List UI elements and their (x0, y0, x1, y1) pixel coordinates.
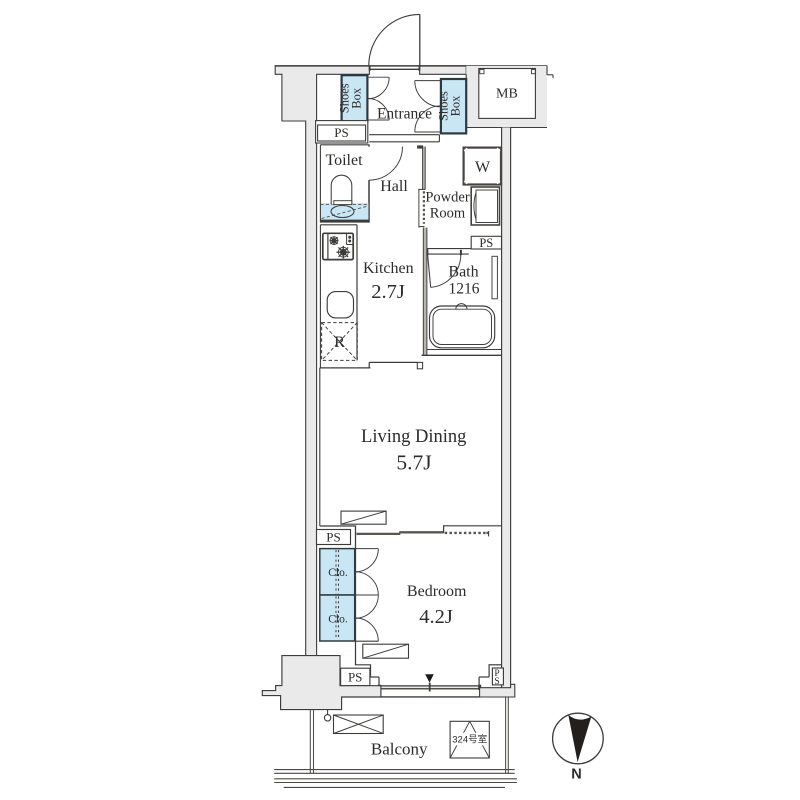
svg-text:W: W (475, 159, 491, 176)
svg-text:1216: 1216 (449, 280, 480, 297)
svg-text:Kitchen: Kitchen (363, 260, 414, 277)
svg-text:Clo.: Clo. (328, 614, 348, 626)
svg-text:PS: PS (326, 529, 340, 544)
svg-text:MB: MB (496, 86, 518, 101)
svg-text:4.2J: 4.2J (419, 606, 453, 628)
svg-text:Toilet: Toilet (325, 152, 363, 169)
svg-text:2.7J: 2.7J (371, 281, 405, 303)
svg-text:Balcony: Balcony (371, 739, 428, 758)
svg-text:5.7J: 5.7J (396, 451, 431, 475)
svg-text:Living Dining: Living Dining (361, 427, 466, 447)
svg-text:S: S (494, 677, 499, 687)
svg-text:Box: Box (449, 95, 463, 117)
svg-text:Box: Box (350, 87, 364, 109)
svg-text:Entrance: Entrance (377, 106, 432, 123)
svg-text:PS: PS (348, 669, 362, 684)
svg-text:Hall: Hall (380, 178, 408, 195)
svg-text:Clo.: Clo. (328, 567, 348, 579)
svg-text:PS: PS (479, 236, 493, 250)
svg-text:Bedroom: Bedroom (407, 583, 467, 600)
svg-text:N: N (571, 767, 581, 783)
svg-text:Powder: Powder (425, 190, 469, 206)
svg-text:Room: Room (430, 206, 466, 222)
svg-text:Bath: Bath (448, 263, 478, 280)
svg-text:R: R (334, 334, 345, 351)
svg-text:324号室: 324号室 (452, 734, 487, 746)
svg-text:PS: PS (334, 125, 348, 140)
